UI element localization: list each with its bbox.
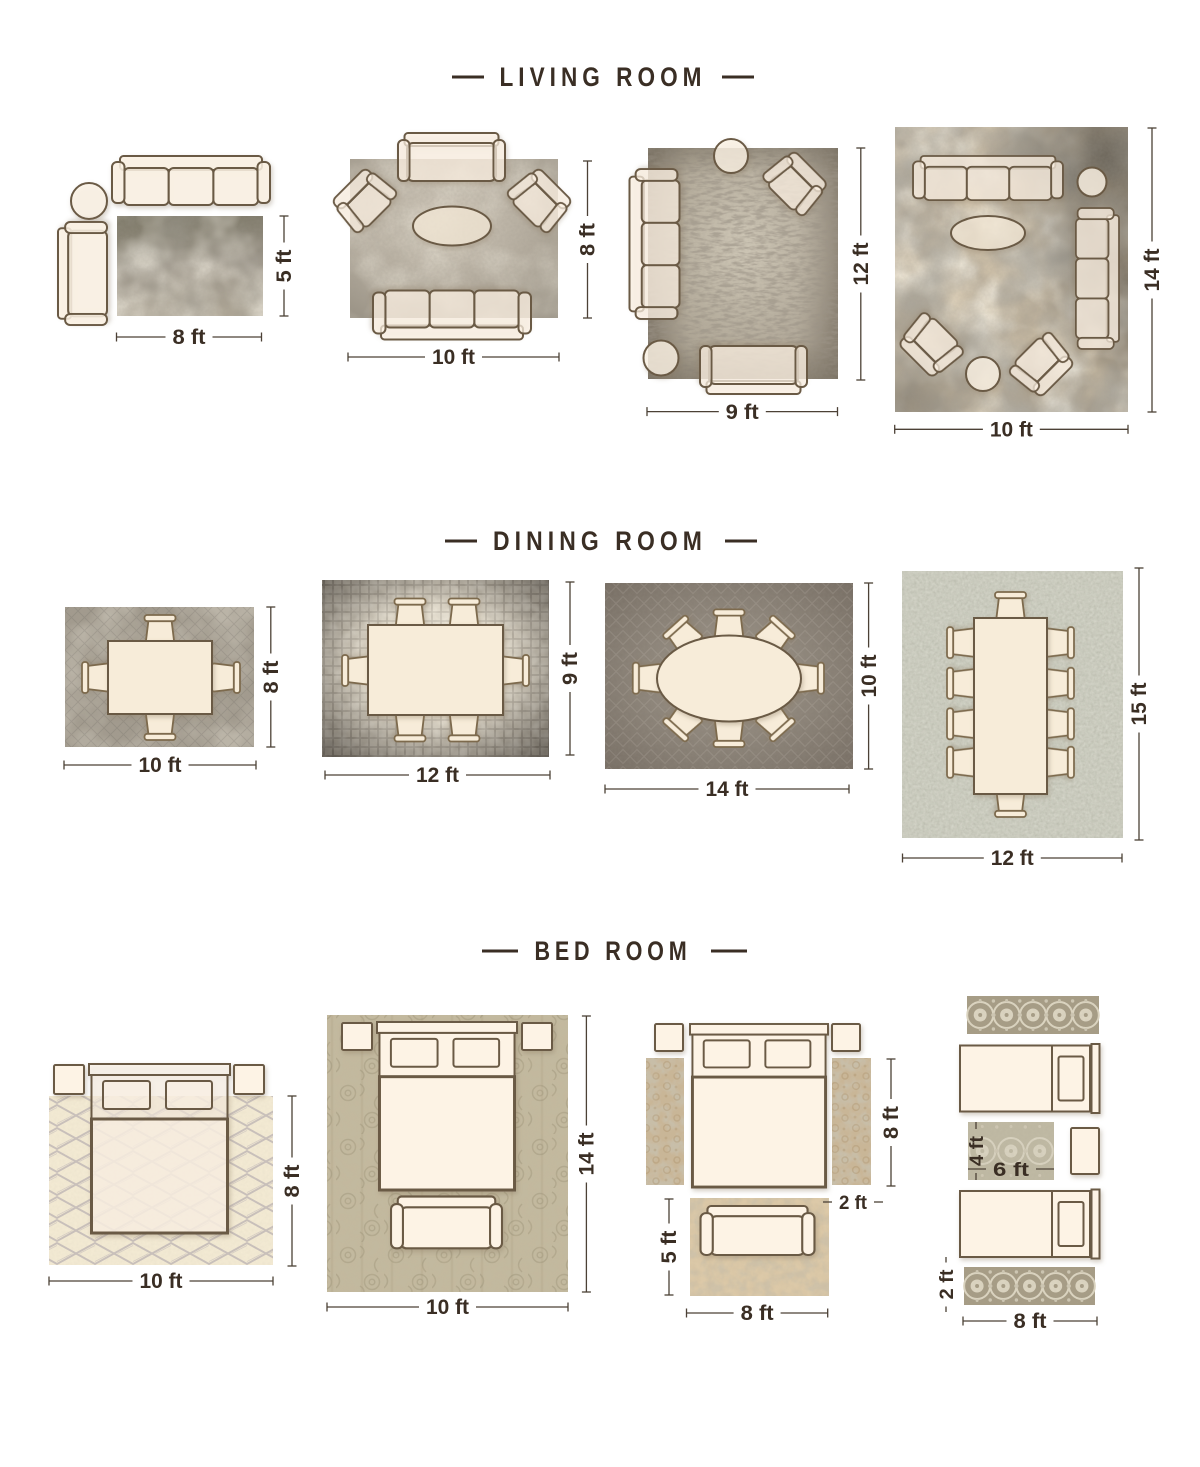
svg-text:10 ft: 10 ft: [140, 1269, 183, 1293]
svg-text:14 ft: 14 ft: [575, 1133, 599, 1176]
svg-text:8 ft: 8 ft: [741, 1301, 774, 1325]
svg-text:15 ft: 15 ft: [1127, 683, 1151, 726]
svg-text:10 ft: 10 ft: [432, 345, 475, 369]
svg-text:12 ft: 12 ft: [849, 243, 873, 286]
svg-text:10 ft: 10 ft: [426, 1295, 469, 1319]
svg-text:10 ft: 10 ft: [990, 418, 1033, 442]
svg-text:5 ft: 5 ft: [272, 250, 296, 283]
svg-text:2 ft: 2 ft: [839, 1193, 868, 1214]
svg-text:4 ft: 4 ft: [967, 1135, 988, 1166]
svg-text:9 ft: 9 ft: [726, 400, 759, 424]
svg-text:5 ft: 5 ft: [657, 1231, 681, 1264]
svg-text:12 ft: 12 ft: [416, 763, 459, 787]
svg-text:LIVING ROOM: LIVING ROOM: [500, 62, 707, 92]
svg-text:8 ft: 8 ft: [1014, 1309, 1047, 1333]
svg-text:8 ft: 8 ft: [280, 1165, 304, 1198]
svg-text:10 ft: 10 ft: [139, 753, 182, 777]
svg-text:BED ROOM: BED ROOM: [535, 936, 692, 966]
svg-text:12 ft: 12 ft: [991, 846, 1034, 870]
svg-text:8 ft: 8 ft: [879, 1106, 903, 1139]
svg-text:14 ft: 14 ft: [706, 777, 749, 801]
svg-text:14 ft: 14 ft: [1140, 249, 1164, 292]
svg-text:2 ft: 2 ft: [937, 1269, 958, 1300]
svg-text:9 ft: 9 ft: [558, 652, 582, 685]
svg-text:8 ft: 8 ft: [173, 325, 206, 349]
svg-text:10 ft: 10 ft: [857, 655, 881, 698]
svg-text:6 ft: 6 ft: [993, 1160, 1030, 1181]
svg-text:8 ft: 8 ft: [259, 661, 283, 694]
svg-text:DINING ROOM: DINING ROOM: [493, 526, 707, 556]
svg-text:8 ft: 8 ft: [576, 223, 600, 256]
